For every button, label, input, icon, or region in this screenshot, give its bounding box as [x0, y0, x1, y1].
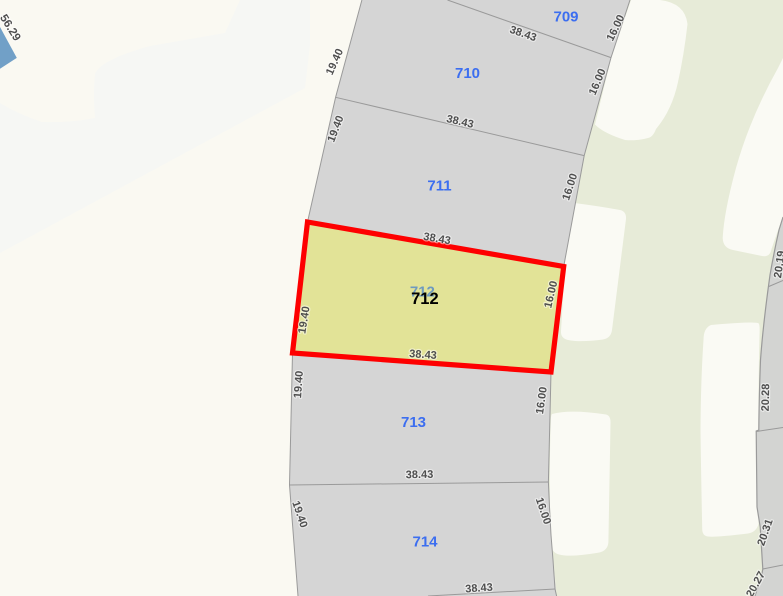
svg-text:38.43: 38.43 [406, 469, 434, 481]
svg-text:714: 714 [412, 534, 438, 551]
svg-text:20.28: 20.28 [760, 384, 772, 412]
svg-text:713: 713 [401, 414, 426, 431]
svg-text:710: 710 [455, 65, 480, 82]
svg-text:38.43: 38.43 [465, 582, 493, 596]
svg-text:711: 711 [427, 178, 451, 195]
svg-text:19.40: 19.40 [292, 370, 306, 398]
svg-text:38.43: 38.43 [409, 348, 437, 362]
svg-text:709: 709 [553, 9, 578, 26]
svg-text:712: 712 [411, 290, 439, 308]
